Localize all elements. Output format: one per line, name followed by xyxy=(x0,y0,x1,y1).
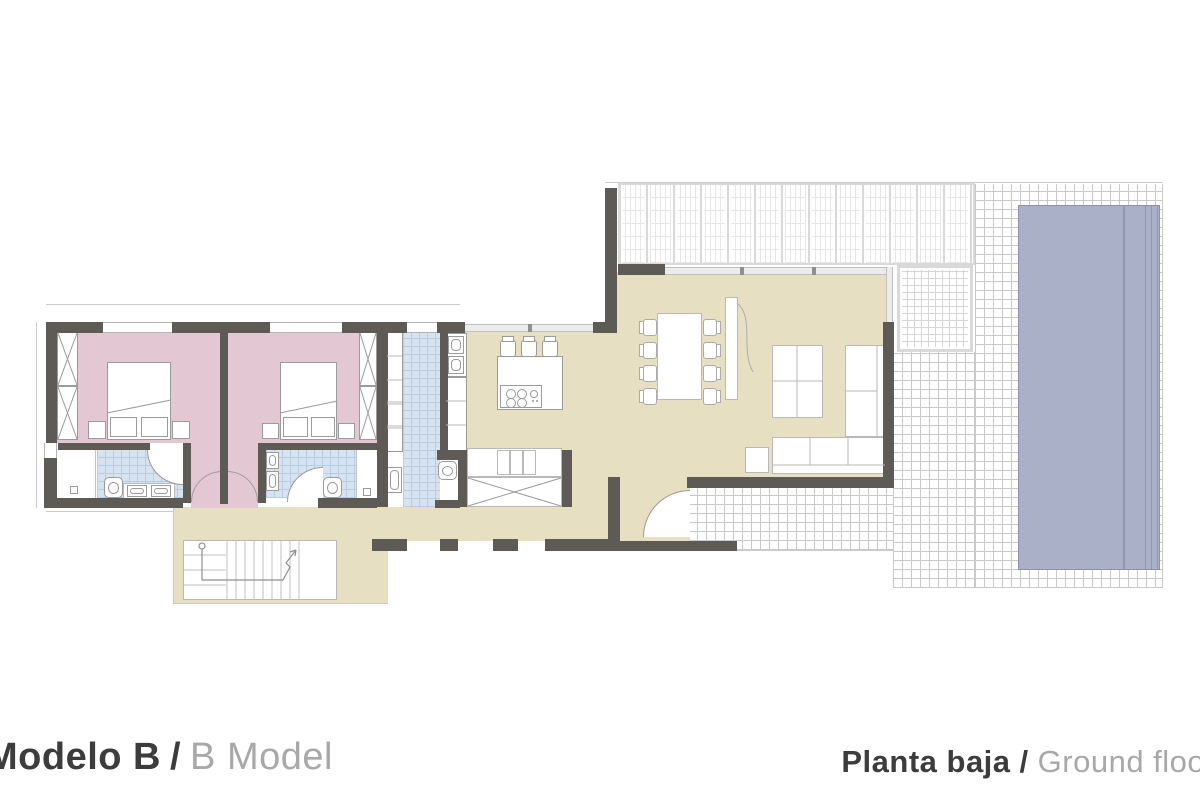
wall-segment xyxy=(342,322,407,333)
mullion xyxy=(528,324,532,332)
boundary-line xyxy=(46,304,460,305)
wardrobe-icon xyxy=(57,332,78,386)
kitchen-sink-icon xyxy=(448,356,464,374)
pergola-roof xyxy=(618,183,975,265)
toilet-icon xyxy=(104,477,123,498)
chair-icon xyxy=(703,365,717,382)
sink-icon xyxy=(387,467,402,493)
sink-icon xyxy=(151,485,171,497)
dining-table-icon xyxy=(657,313,702,400)
pool xyxy=(1018,205,1160,570)
wall-segment xyxy=(46,322,57,443)
wall-segment xyxy=(258,443,377,450)
footer-title-left: Modelo B/B Model xyxy=(0,736,333,779)
side-table-icon xyxy=(745,447,769,473)
nightstand xyxy=(88,421,106,439)
nightstand xyxy=(172,421,190,439)
chair-icon xyxy=(643,365,657,382)
separator: / xyxy=(170,736,181,778)
wall-segment xyxy=(440,539,458,551)
bar-stool-icon xyxy=(521,340,537,357)
chair-icon xyxy=(643,342,657,359)
wall-segment xyxy=(377,322,388,507)
storage-closet xyxy=(467,477,562,507)
wardrobe-icon xyxy=(359,386,377,440)
wall-segment xyxy=(562,450,572,507)
window xyxy=(103,322,172,333)
window xyxy=(407,322,437,333)
mullion xyxy=(740,267,744,275)
wall-segment xyxy=(620,541,737,551)
kitchen-cabinet xyxy=(445,377,467,451)
sink-icon xyxy=(266,452,279,469)
wardrobe-icon xyxy=(57,386,78,440)
wall-segment xyxy=(435,500,460,508)
wall-segment xyxy=(458,452,467,507)
kitchen-sink-icon xyxy=(448,336,464,354)
hall-counter-box xyxy=(523,450,536,475)
nightstand xyxy=(338,423,355,439)
partition-line xyxy=(356,450,357,498)
pergola-panel xyxy=(897,265,973,352)
floor-plan-canvas: Modelo B/B Model Planta baja/Ground floo… xyxy=(0,0,1200,800)
chair-icon xyxy=(643,388,657,405)
window xyxy=(44,443,57,458)
rug xyxy=(772,345,823,418)
bar-stool-icon xyxy=(542,340,558,357)
pillow xyxy=(311,417,335,437)
model-label-es: Modelo B xyxy=(0,736,161,778)
wardrobe-icon xyxy=(359,332,377,386)
glass-wall xyxy=(665,267,886,275)
pool-step-line xyxy=(1151,206,1152,569)
bar-stool-icon xyxy=(500,340,516,357)
sink-icon xyxy=(127,485,147,497)
floor-drain xyxy=(70,486,78,494)
pillow xyxy=(141,417,168,437)
footer-title-right: Planta baja/Ground floor xyxy=(841,744,1200,780)
wall-segment xyxy=(318,498,377,508)
toilet-icon xyxy=(323,477,342,498)
boundary-line xyxy=(46,511,173,512)
partition-line xyxy=(95,450,96,498)
shelving-unit xyxy=(386,332,403,452)
cooktop-icon xyxy=(500,385,542,408)
wall-segment xyxy=(58,443,150,450)
model-label-en: B Model xyxy=(190,736,333,778)
wall-segment xyxy=(883,322,894,488)
floor-label-es: Planta baja xyxy=(841,744,1010,779)
sofa-icon xyxy=(845,345,886,437)
tv-cabinet-icon xyxy=(725,297,738,400)
pillow xyxy=(283,417,308,437)
chair-icon xyxy=(703,342,717,359)
hall-counter-box xyxy=(497,450,510,475)
wall-segment xyxy=(687,477,893,488)
toilet-icon xyxy=(438,461,457,480)
wall-segment xyxy=(372,539,407,551)
glass-wall xyxy=(886,267,893,322)
wall-segment xyxy=(183,443,191,503)
wall-segment xyxy=(605,188,617,333)
wall-segment xyxy=(258,443,266,503)
boundary-line xyxy=(1162,184,1163,588)
pool-step-line xyxy=(1157,206,1158,569)
wall-segment xyxy=(440,332,448,452)
floor-drain xyxy=(363,488,371,496)
chair-icon xyxy=(703,319,717,336)
sink-icon xyxy=(266,471,279,491)
wall-segment xyxy=(46,498,183,508)
boundary-line xyxy=(36,322,37,508)
stairs xyxy=(183,540,337,600)
chair-icon xyxy=(643,319,657,336)
hallway-floor xyxy=(174,507,620,541)
wall-segment xyxy=(220,322,228,504)
pool-step-line xyxy=(1123,206,1125,569)
separator: / xyxy=(1020,744,1029,779)
chair-icon xyxy=(703,388,717,405)
wall-segment xyxy=(618,264,665,275)
tiled-terrace xyxy=(893,352,975,588)
hall-counter-box xyxy=(510,450,523,475)
wall-segment xyxy=(493,539,518,551)
floor-label-en: Ground floor xyxy=(1038,744,1200,779)
wall-segment xyxy=(608,477,620,541)
pillow xyxy=(110,417,137,437)
wc-laundry-floor xyxy=(403,332,440,507)
nightstand xyxy=(262,423,279,439)
sofa-icon xyxy=(772,437,886,474)
mullion xyxy=(812,267,816,275)
window xyxy=(270,322,342,333)
pool-step-line xyxy=(1145,206,1146,569)
